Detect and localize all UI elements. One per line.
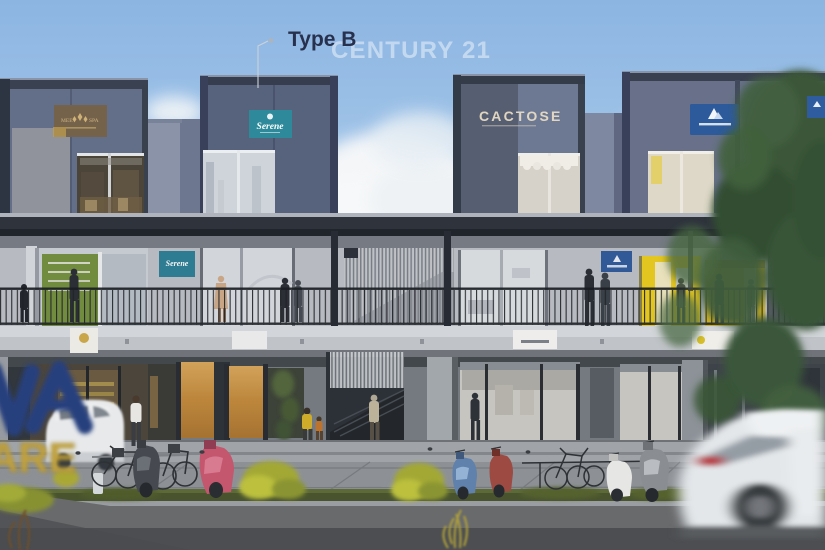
svg-text:CACTOSE: CACTOSE: [479, 108, 563, 124]
svg-text:Type B: Type B: [288, 28, 356, 51]
svg-text:SPA: SPA: [89, 118, 99, 124]
svg-text:Serene: Serene: [257, 122, 285, 132]
svg-text:ARE: ARE: [0, 434, 77, 481]
svg-text:MEE: MEE: [61, 118, 73, 124]
